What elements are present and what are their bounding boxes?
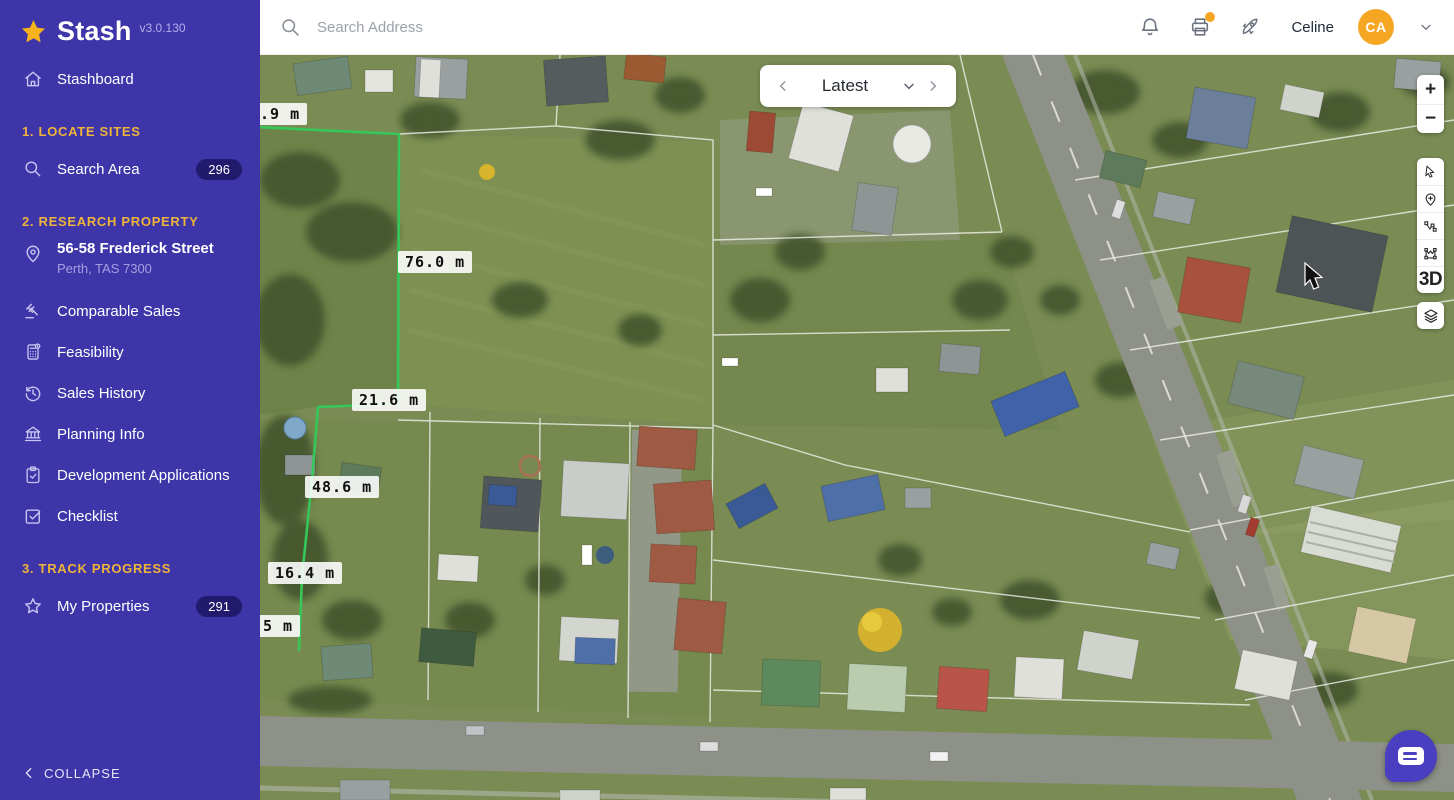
history-clock-icon <box>22 383 43 404</box>
user-name: Celine <box>1291 19 1334 36</box>
map-tools: 3D <box>1417 158 1444 293</box>
timeline-selected-label[interactable]: Latest <box>792 76 898 96</box>
sidebar-item-sales-history[interactable]: Sales History <box>0 373 260 413</box>
sidebar-item-stashboard[interactable]: Stashboard <box>0 59 260 99</box>
print-notification-dot <box>1205 12 1215 22</box>
sidebar-item-label: Feasibility <box>57 344 124 361</box>
layers-control <box>1417 302 1444 329</box>
sidebar-item-search-area[interactable]: Search Area 296 <box>0 149 260 189</box>
sidebar-item-checklist[interactable]: Checklist <box>0 496 260 536</box>
search-address-input[interactable] <box>315 18 639 37</box>
app-version: v3.0.130 <box>140 21 186 35</box>
search-area-count-badge: 296 <box>196 159 242 180</box>
sidebar-item-development-applications[interactable]: Development Applications <box>0 455 260 495</box>
satellite-map[interactable] <box>260 55 1454 800</box>
sidebar-item-comparable-sales[interactable]: Comparable Sales <box>0 291 260 331</box>
whats-new-button[interactable] <box>1237 14 1263 40</box>
chevron-left-icon <box>22 766 36 780</box>
sidebar-item-label: Search Area <box>57 161 140 178</box>
topbar: Celine CA <box>260 0 1454 55</box>
sidebar-item-label: Stashboard <box>57 71 134 88</box>
chevron-left-icon <box>776 79 790 93</box>
drop-pin-tool-button[interactable] <box>1417 185 1444 212</box>
layers-button[interactable] <box>1417 302 1444 329</box>
section-locate-sites: 1. LOCATE SITES <box>0 123 260 141</box>
clipboard-check-icon <box>22 465 43 486</box>
bank-icon <box>22 424 43 445</box>
notifications-button[interactable] <box>1137 14 1163 40</box>
section-track-progress: 3. TRACK PROGRESS <box>0 560 260 578</box>
property-address: 56-58 Frederick Street <box>57 240 214 257</box>
measurement-label: .9 m <box>260 103 307 125</box>
star-outline-icon <box>22 596 43 617</box>
sidebar-item-label: Comparable Sales <box>57 303 180 320</box>
zoom-in-button[interactable]: + <box>1417 75 1444 104</box>
measurement-label: 16.4 m <box>268 562 342 584</box>
sidebar-item-feasibility[interactable]: Feasibility <box>0 332 260 372</box>
print-button[interactable] <box>1187 14 1213 40</box>
chat-launcher-button[interactable] <box>1385 730 1437 782</box>
sidebar-item-label: Checklist <box>57 508 118 525</box>
map-area: .9 m 76.0 m 21.6 m 48.6 m 16.4 m 5 m Lat… <box>260 55 1454 800</box>
measurement-label: 21.6 m <box>352 389 426 411</box>
app-name: Stash <box>57 16 132 47</box>
sidebar-item-label: Sales History <box>57 385 145 402</box>
imagery-timeline: Latest <box>760 65 956 107</box>
sidebar-item-planning-info[interactable]: Planning Info <box>0 414 260 454</box>
collapse-label: COLLAPSE <box>44 766 121 781</box>
search-icon <box>280 17 301 38</box>
home-icon <box>22 69 43 90</box>
sidebar-item-my-properties[interactable]: My Properties 291 <box>0 586 260 626</box>
my-properties-count-badge: 291 <box>196 596 242 617</box>
user-avatar[interactable]: CA <box>1358 9 1394 45</box>
rocket-icon <box>1239 16 1261 38</box>
property-locality: Perth, TAS 7300 <box>57 261 152 276</box>
cursor-arrow-icon <box>1423 164 1438 179</box>
star-logo-icon <box>20 18 47 45</box>
polyline-measure-icon <box>1423 219 1438 234</box>
measure-area-tool-button[interactable] <box>1417 239 1444 266</box>
measurement-label: 48.6 m <box>305 476 379 498</box>
address-search <box>280 17 1137 38</box>
timeline-next-button[interactable] <box>924 77 942 95</box>
location-pin-icon <box>22 243 43 264</box>
select-tool-button[interactable] <box>1417 158 1444 185</box>
measurement-label: 5 m <box>260 615 300 637</box>
zoom-out-button[interactable]: − <box>1417 104 1444 133</box>
measurement-label: 76.0 m <box>398 251 472 273</box>
timeline-dropdown-button[interactable] <box>900 77 918 95</box>
pin-plus-icon <box>1423 192 1438 207</box>
chevron-down-icon <box>901 78 917 94</box>
app-logo[interactable]: Stash v3.0.130 <box>0 0 260 47</box>
measure-path-tool-button[interactable] <box>1417 212 1444 239</box>
bell-icon <box>1139 16 1161 38</box>
section-research-property: 2. RESEARCH PROPERTY <box>0 213 260 231</box>
search-icon <box>22 159 43 180</box>
sidebar-item-label: My Properties <box>57 598 150 615</box>
checkbox-check-icon <box>22 506 43 527</box>
polygon-measure-icon <box>1423 246 1438 261</box>
layers-icon <box>1423 308 1439 324</box>
sidebar-item-current-property[interactable]: 56-58 Frederick Street Perth, TAS 7300 <box>0 231 260 283</box>
calculator-icon <box>22 342 43 363</box>
timeline-prev-button[interactable] <box>774 77 792 95</box>
chevron-down-icon[interactable] <box>1418 19 1434 35</box>
chat-icon <box>1398 747 1424 765</box>
sidebar: Stash v3.0.130 Stashboard 1. LOCATE SITE… <box>0 0 260 800</box>
collapse-sidebar-button[interactable]: COLLAPSE <box>22 758 121 788</box>
gavel-icon <box>22 301 43 322</box>
sidebar-item-label: Planning Info <box>57 426 145 443</box>
chevron-right-icon <box>926 79 940 93</box>
app-window: Stash v3.0.130 Stashboard 1. LOCATE SITE… <box>0 0 1454 800</box>
zoom-control: + − <box>1417 75 1444 133</box>
view-3d-button[interactable]: 3D <box>1417 266 1444 293</box>
sidebar-item-label: Development Applications <box>57 467 230 484</box>
